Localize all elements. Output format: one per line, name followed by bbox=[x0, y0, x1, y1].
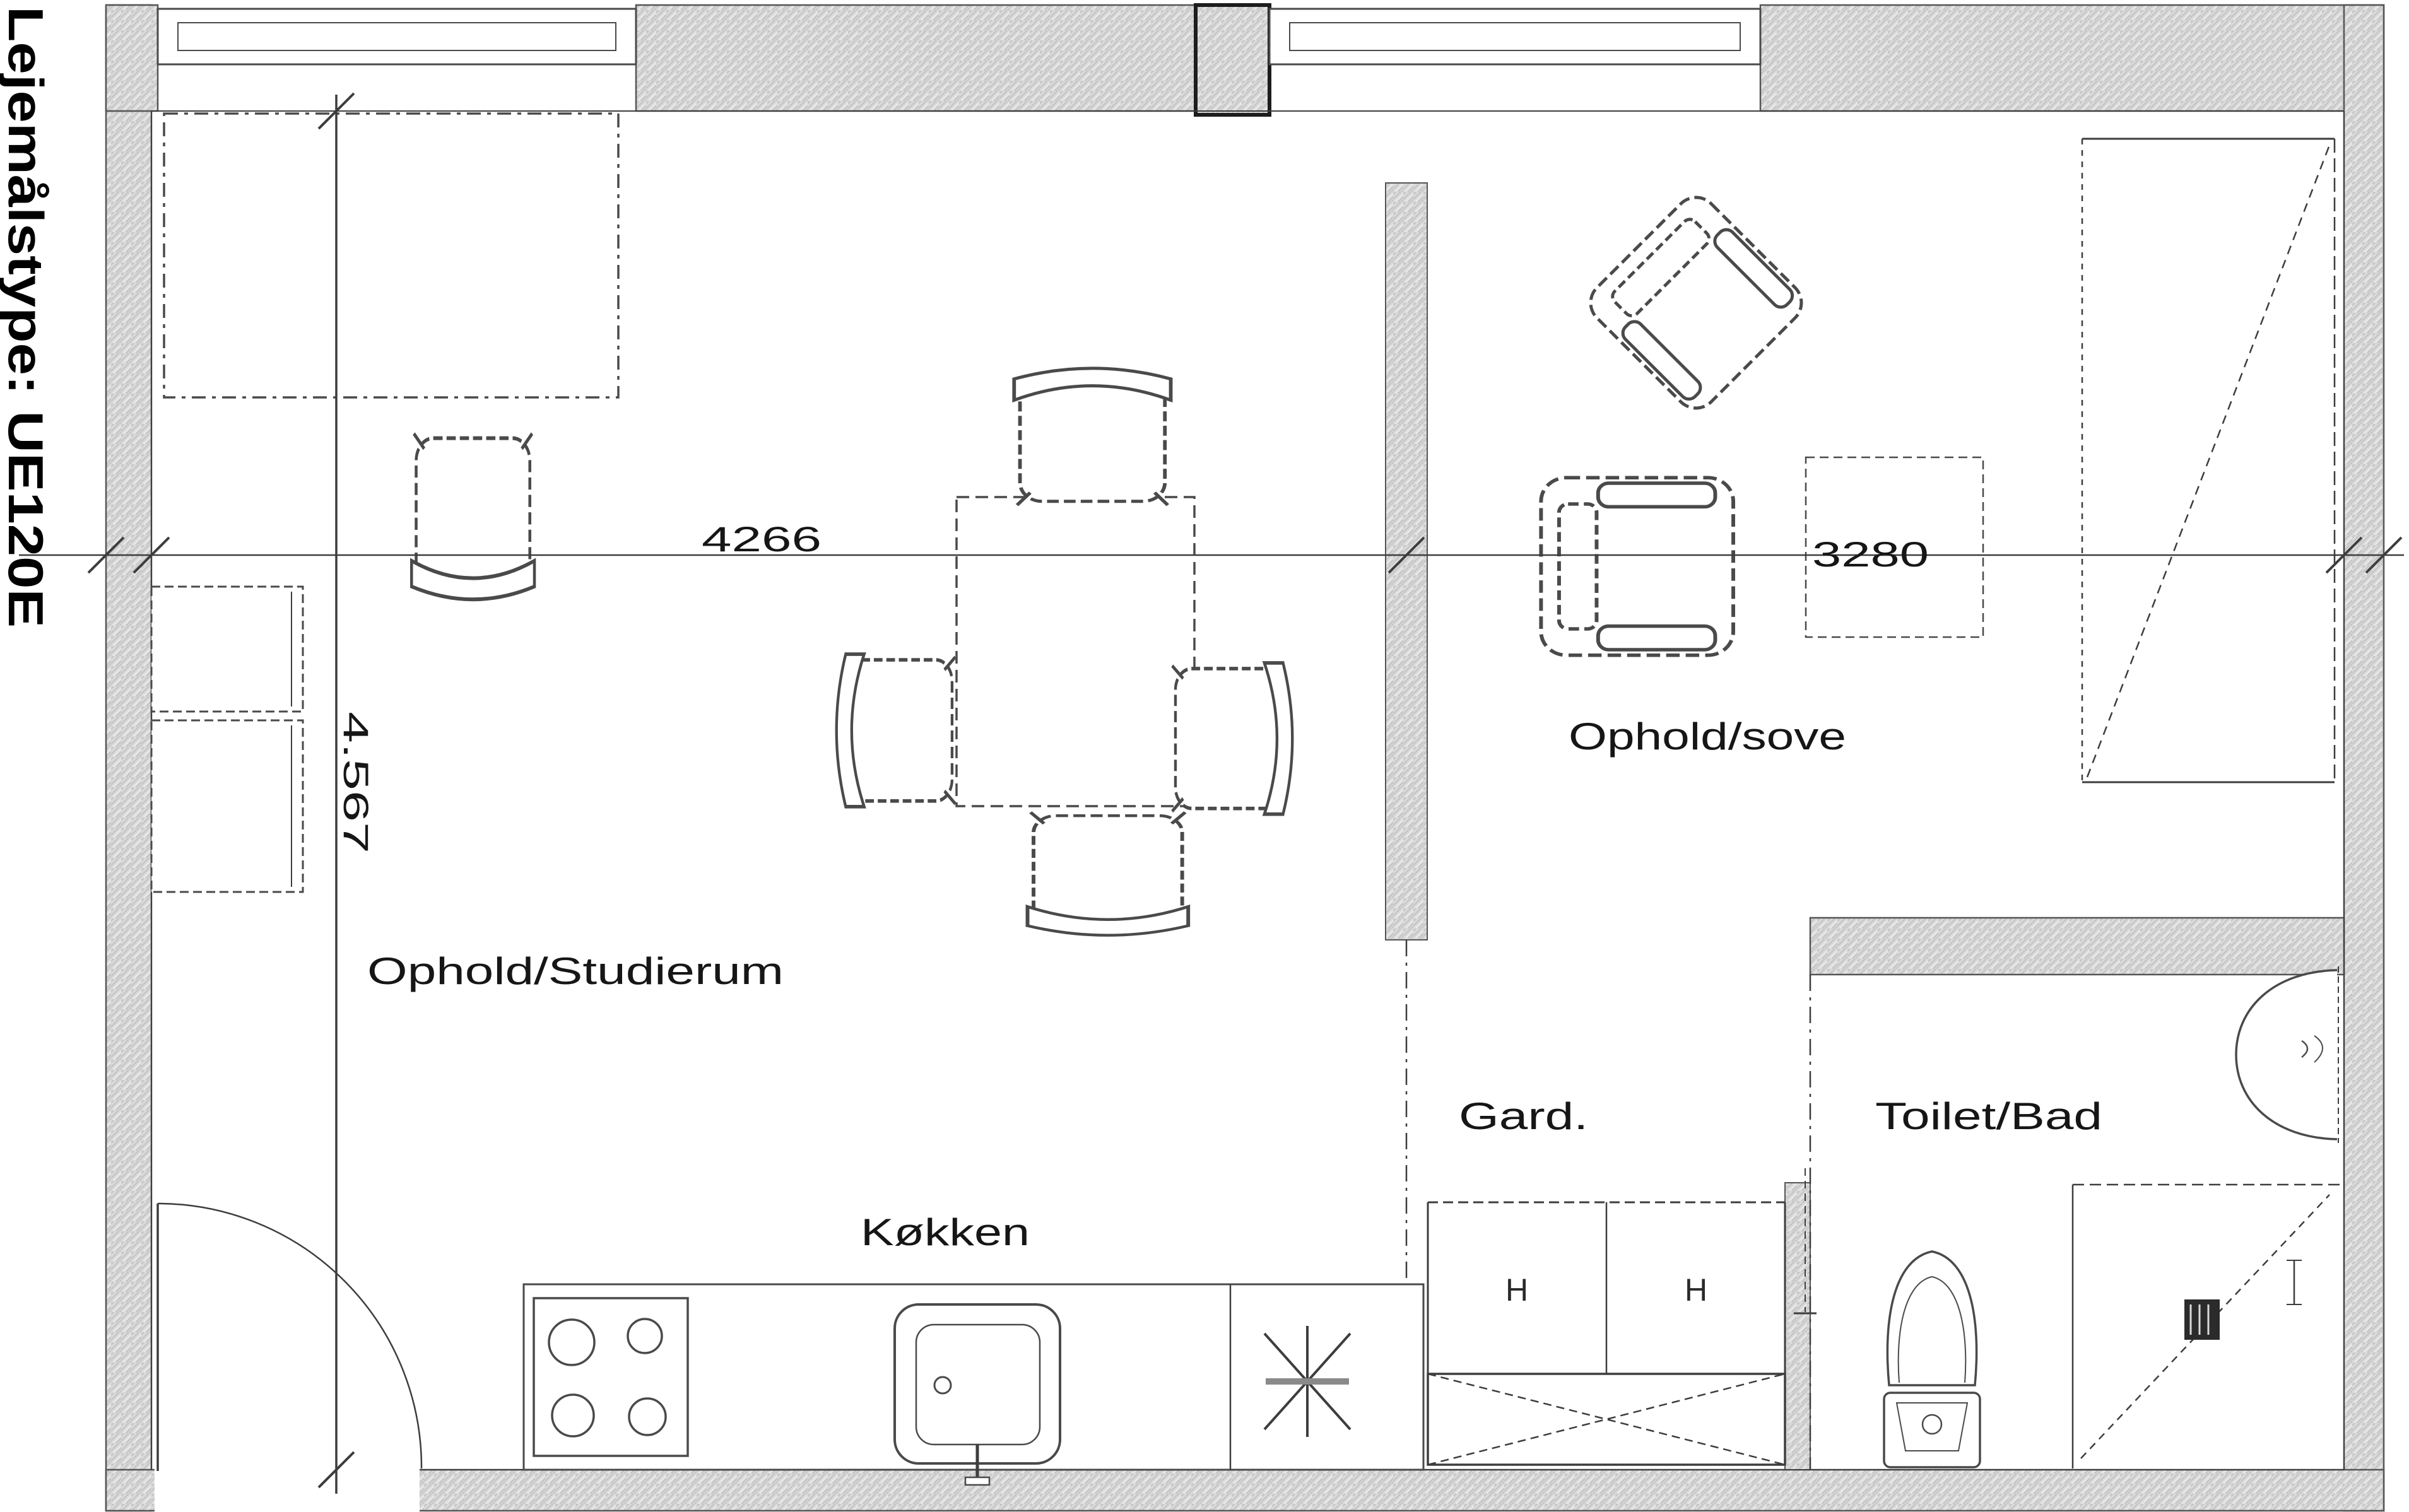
room-label-bath: Toilet/Bad bbox=[1875, 1095, 2102, 1137]
page-title: Lejemålstype: UE120E bbox=[0, 6, 54, 628]
dim-line-horizontal bbox=[19, 537, 2404, 573]
room-label-living-study: Ophold/Studierum bbox=[367, 950, 784, 992]
wall-pillar bbox=[1196, 5, 1269, 115]
dining-chair-north bbox=[1014, 368, 1170, 505]
floor-plan-drawing: H H bbox=[0, 0, 2409, 1512]
room-label-living-sleep: Ophold/sove bbox=[1569, 715, 1846, 758]
stove bbox=[534, 1298, 688, 1456]
bed bbox=[2082, 139, 2335, 782]
wall-toilet-horizontal bbox=[1810, 918, 2344, 975]
daybed bbox=[164, 114, 618, 397]
wall-toilet-vertical bbox=[1785, 1183, 1810, 1470]
window-left bbox=[158, 9, 636, 111]
kitchen-counter bbox=[524, 1284, 1423, 1485]
dim-label-4567: 4.567 bbox=[336, 712, 376, 853]
desk-chair bbox=[411, 433, 534, 599]
wardrobe-cabinet: H H bbox=[1428, 1168, 1817, 1465]
wall-right bbox=[2344, 5, 2384, 1511]
shower bbox=[2073, 1185, 2341, 1468]
dining-chair-south bbox=[1028, 812, 1189, 935]
wall-top-corner-left bbox=[106, 5, 158, 111]
dining-table bbox=[957, 497, 1194, 806]
floor-plan-page: H H bbox=[0, 0, 2409, 1512]
toilet bbox=[1884, 1251, 1980, 1467]
washbasin bbox=[2236, 966, 2338, 1143]
shower-drain bbox=[2184, 1299, 2220, 1340]
entry-door bbox=[158, 1204, 421, 1471]
wall-partition-center bbox=[1386, 183, 1427, 940]
dim-label-4266: 4266 bbox=[702, 519, 822, 559]
wall-left bbox=[106, 5, 151, 1511]
wall-bottom bbox=[106, 1470, 2384, 1511]
dining-chair-west bbox=[837, 654, 955, 807]
room-label-wardrobe: Gard. bbox=[1459, 1095, 1588, 1137]
wall-top-right bbox=[1760, 5, 2384, 111]
door-swing-arc bbox=[158, 1204, 421, 1468]
kitchen-sink bbox=[895, 1304, 1060, 1485]
shower-dim-mark bbox=[2287, 1260, 2302, 1304]
room-living-sleep bbox=[1541, 139, 2335, 782]
wall-shelf-upper bbox=[151, 587, 303, 712]
sink-faucet-base bbox=[965, 1477, 989, 1485]
wall-top-middle bbox=[636, 5, 1196, 111]
dining-chair-east bbox=[1172, 663, 1293, 814]
room-label-kitchen: Køkken bbox=[861, 1211, 1030, 1253]
door-opening bbox=[155, 1466, 420, 1512]
window-center bbox=[1269, 9, 1760, 111]
wardrobe-rail-right-symbol: H bbox=[1685, 1272, 1707, 1308]
labels: Lejemålstype: UE120E 4266 3280 4.567 Oph… bbox=[0, 6, 2102, 1253]
armchair-tilted bbox=[1582, 189, 1810, 417]
toilet-cistern bbox=[1884, 1393, 1980, 1467]
dim-label-3280: 3280 bbox=[1812, 534, 1929, 574]
wall-shelf-lower bbox=[151, 720, 303, 892]
bed-diagonal bbox=[2087, 145, 2329, 777]
room-toilet-bath bbox=[1884, 966, 2341, 1468]
wardrobe-rail-left-symbol: H bbox=[1505, 1272, 1528, 1308]
armchair bbox=[1541, 478, 1733, 655]
